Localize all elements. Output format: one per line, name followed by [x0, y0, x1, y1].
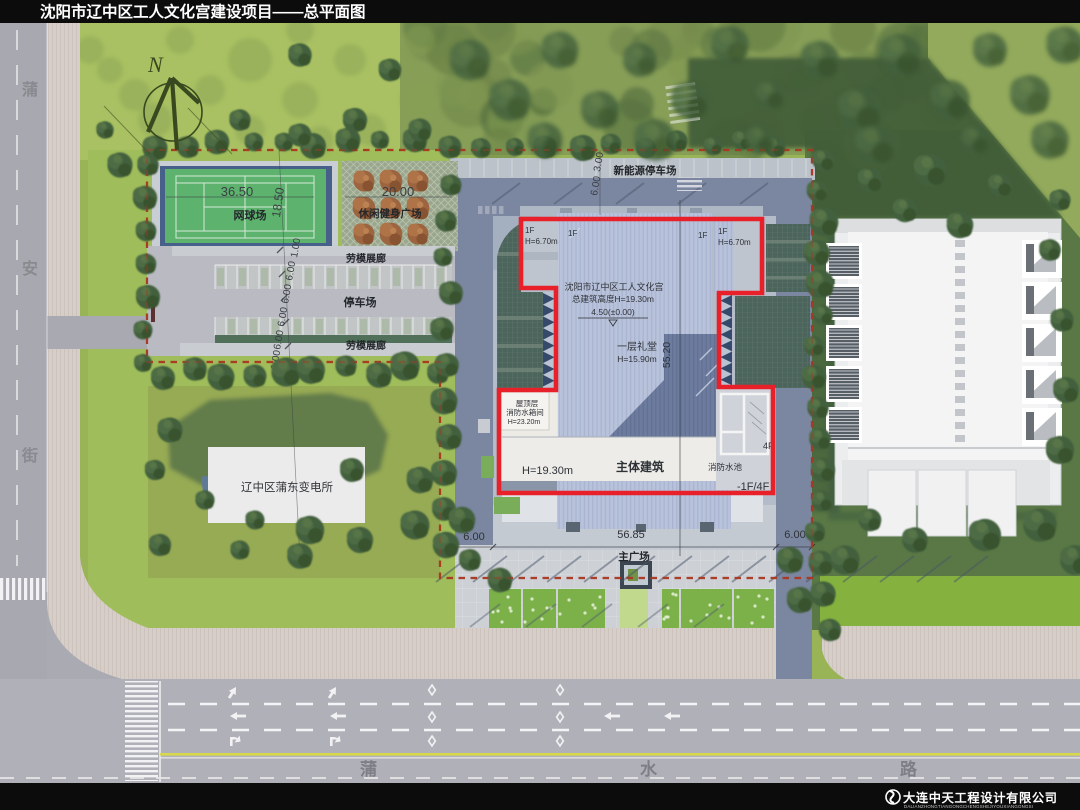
svg-text:街: 街: [21, 446, 38, 465]
svg-text:6.00: 6.00: [784, 529, 805, 541]
svg-text:6.00: 6.00: [463, 531, 484, 543]
svg-text:辽中区蒲东变电所: 辽中区蒲东变电所: [241, 480, 333, 494]
svg-text:主体建筑: 主体建筑: [616, 459, 664, 474]
svg-text:安: 安: [22, 259, 38, 278]
svg-text:DALIANZHONGTIANGONGCHENGSHEJIY: DALIANZHONGTIANGONGCHENGSHEJIYOUXIANGONG…: [904, 804, 1033, 809]
svg-text:H=23.20m: H=23.20m: [508, 419, 541, 426]
svg-text:1F: 1F: [525, 226, 534, 235]
svg-text:H=6.70m: H=6.70m: [525, 237, 558, 246]
svg-text:蒲: 蒲: [360, 760, 377, 779]
svg-text:H=6.70m: H=6.70m: [718, 238, 751, 247]
svg-text:主广场: 主广场: [618, 550, 650, 563]
svg-text:55.20: 55.20: [661, 342, 673, 368]
svg-text:大连中天工程设计有限公司: 大连中天工程设计有限公司: [903, 790, 1058, 805]
svg-text:1F: 1F: [698, 231, 707, 240]
svg-text:56.85: 56.85: [617, 529, 645, 541]
svg-text:网球场: 网球场: [234, 208, 267, 222]
svg-text:一层礼堂: 一层礼堂: [617, 340, 657, 353]
svg-text:N: N: [147, 52, 164, 77]
svg-text:消防水箱间: 消防水箱间: [506, 407, 544, 417]
svg-text:休闲健身广场: 休闲健身广场: [358, 207, 422, 220]
svg-text:劳模展廊: 劳模展廊: [346, 339, 386, 352]
svg-text:蒲: 蒲: [22, 80, 38, 99]
svg-text:劳模展廊: 劳模展廊: [346, 252, 386, 265]
svg-text:路: 路: [900, 759, 918, 779]
svg-text:沈阳市辽中区工人文化宫: 沈阳市辽中区工人文化宫: [564, 281, 663, 292]
svg-text:H=19.30m: H=19.30m: [522, 465, 573, 477]
svg-text:停车场: 停车场: [344, 295, 377, 309]
svg-text:新能源停车场: 新能源停车场: [614, 164, 677, 177]
svg-text:屋顶层: 屋顶层: [516, 399, 539, 408]
svg-text:1F: 1F: [718, 227, 727, 236]
svg-text:水: 水: [640, 759, 658, 779]
svg-text:总建筑高度H=19.30m: 总建筑高度H=19.30m: [572, 294, 654, 304]
svg-text:4.50(±0.00): 4.50(±0.00): [591, 307, 635, 317]
svg-text:沈阳市辽中区工人文化宫建设项目——总平面图: 沈阳市辽中区工人文化宫建设项目——总平面图: [40, 2, 366, 21]
svg-text:消防水池: 消防水池: [708, 462, 743, 472]
svg-text:1F: 1F: [568, 229, 577, 238]
svg-text:H=15.90m: H=15.90m: [617, 354, 656, 364]
